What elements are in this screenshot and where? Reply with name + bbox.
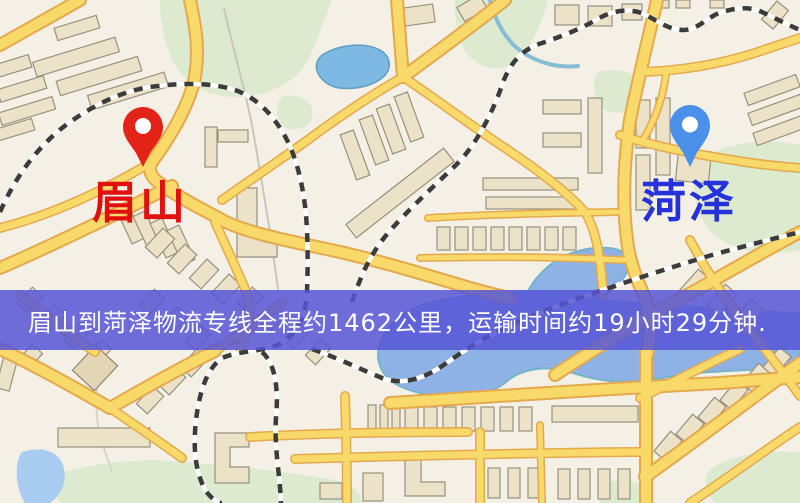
route-info-text: 眉山到菏泽物流专线全程约1462公里，运输时间约19小时29分钟. bbox=[0, 303, 767, 338]
route-info-banner: 眉山到菏泽物流专线全程约1462公里，运输时间约19小时29分钟. bbox=[0, 290, 800, 350]
map-background bbox=[0, 0, 800, 503]
destination-city-label: 菏泽 bbox=[641, 180, 737, 225]
origin-marker-pin[interactable] bbox=[120, 106, 166, 172]
destination-marker-pin[interactable] bbox=[667, 104, 713, 172]
map-view: 眉山 菏泽 眉山到菏泽物流专线全程约1462公里，运输时间约19小时29分钟. bbox=[0, 0, 800, 503]
origin-city-label: 眉山 bbox=[92, 181, 188, 226]
map-pin-icon bbox=[667, 104, 713, 168]
map-pin-icon bbox=[120, 106, 166, 168]
